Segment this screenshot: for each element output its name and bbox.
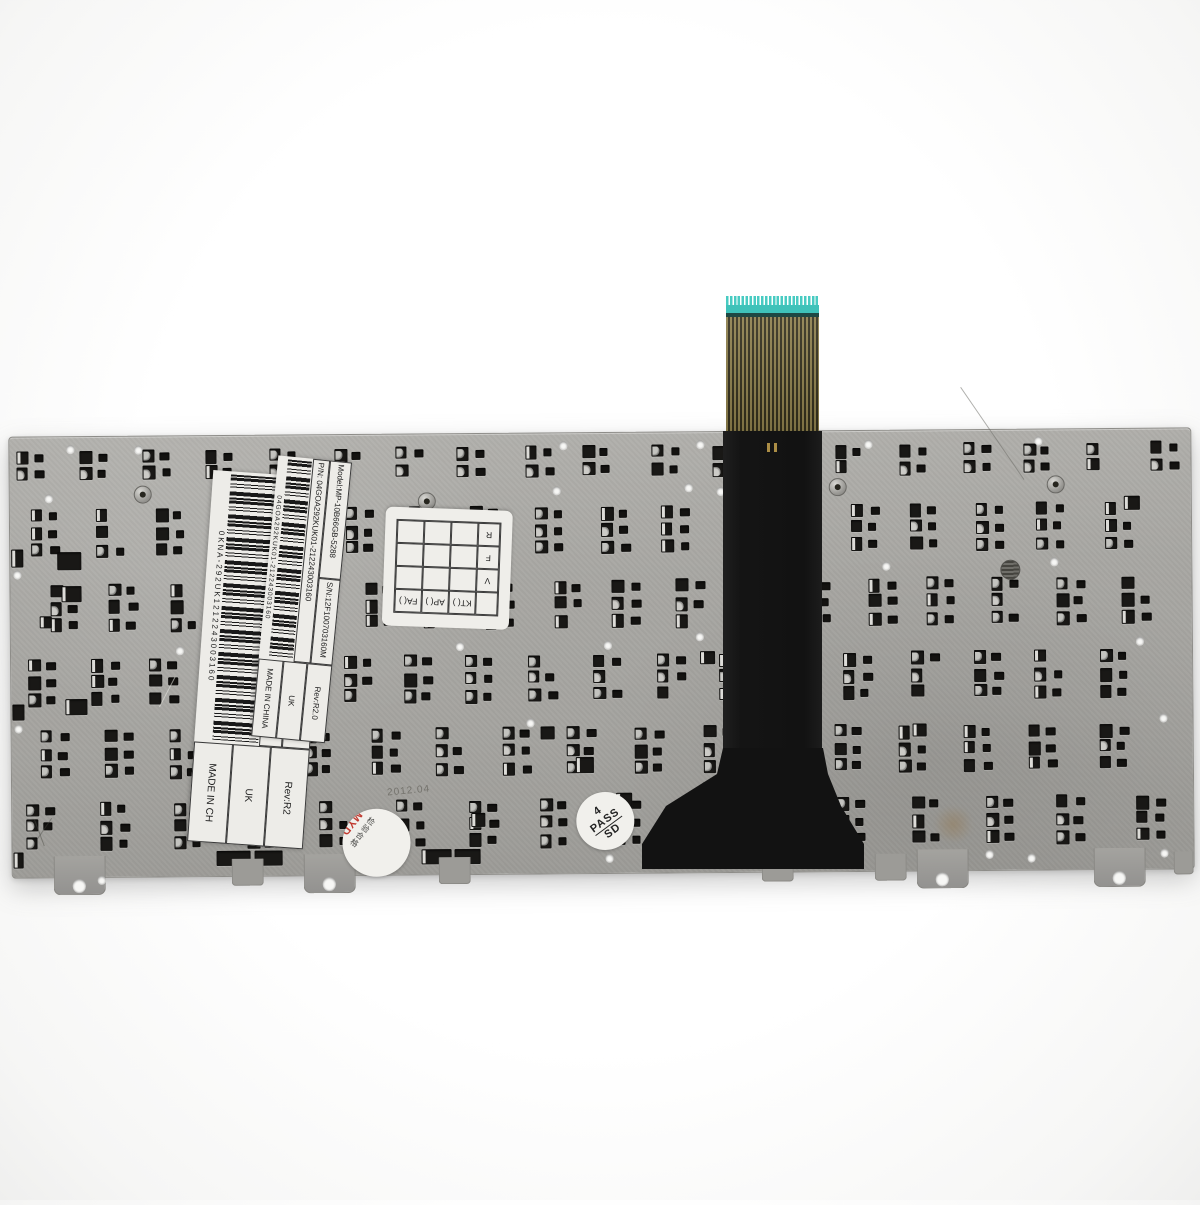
clip-slot [1057,593,1070,607]
clip-slot [31,509,42,521]
clip-slot [1056,813,1069,825]
clip-slot [1056,504,1064,512]
clip-slot [851,504,863,517]
clip-slot [143,465,156,479]
clip-slot [422,657,432,665]
clip-slot [1077,614,1087,622]
clip-slot [1122,610,1135,624]
clip-slot [631,801,641,809]
clip-slot [823,614,831,622]
clip-slot [96,545,108,558]
clip-slot [835,743,847,755]
clip-slot [868,523,876,531]
clip-slot [48,530,57,538]
clip-slot [917,464,926,472]
clip-slot [365,510,374,518]
clip-slot [835,445,846,459]
clip-slot [995,541,1004,549]
clip-slot [364,529,372,537]
clip-slot [852,727,862,735]
clip-slot [100,821,112,835]
clip-slot [1034,685,1046,698]
clip-slot [421,692,430,700]
clip-slot [554,527,562,535]
clip-slot [100,837,112,851]
clip-slot [395,447,406,459]
clip-slot [404,689,416,703]
clip-slot [454,766,464,774]
clip-slot [415,838,425,846]
clip-slot [109,619,120,632]
plate-hole [606,854,614,862]
clip-slot [173,546,182,554]
plate-hole [98,876,106,884]
clip-slot [704,725,717,737]
clip-slot [16,451,28,464]
clip-slot [911,668,922,682]
clip-slot [976,503,987,516]
plate-hole [45,494,53,502]
clip-slot [984,762,993,770]
clip-slot [1076,580,1085,588]
clip-slot [51,618,62,632]
clip-slot [108,678,117,686]
large-cutout [700,651,715,664]
clip-slot [469,833,481,847]
clip-slot [120,824,130,832]
clip-slot [587,729,597,737]
clip-slot [163,468,171,476]
plate-hole [882,562,890,570]
clip-slot [974,650,986,664]
clip-slot [174,819,186,831]
clip-slot [344,689,356,702]
clip-slot [1086,458,1099,470]
clip-slot [593,670,605,683]
clip-slot [555,596,567,608]
clip-slot [557,801,566,809]
clip-slot [1100,649,1113,662]
clip-slot [404,673,417,687]
cable-gold-mark [767,443,770,452]
clip-slot [528,670,539,682]
clip-slot [372,729,383,743]
clip-slot [713,463,724,477]
clip-slot [540,815,552,827]
clip-slot [852,448,860,456]
clip-slot [571,584,580,592]
clip-slot [619,526,628,534]
backplate-tilt-wrapper: 2012.04 Model:MP-10B66GB-5288 S/N:12F100… [0,0,1200,1205]
clip-slot [947,596,955,604]
clip-slot [363,659,371,667]
clip-slot [863,656,872,664]
clip-slot [671,447,679,455]
clip-slot [1056,794,1067,807]
clip-slot [899,743,911,757]
cable-black-section [723,431,822,755]
large-cutout [576,757,594,773]
clip-slot [176,530,184,538]
clip-slot [964,725,976,738]
clip-slot [900,462,911,476]
clip-slot [554,543,563,551]
clip-slot [156,527,169,540]
clip-slot [46,662,56,670]
clip-slot [582,445,595,458]
clip-slot [1169,443,1177,451]
clip-slot [584,747,594,755]
plate-hole [696,632,704,640]
clip-slot [346,526,358,540]
grid-cell [396,543,424,567]
clip-slot [888,597,898,605]
grid-cell-r: R [478,523,501,547]
plate-hole [134,446,142,454]
clip-slot [41,765,52,778]
mount-bump [232,859,264,886]
clip-slot [322,749,331,757]
large-cutout [14,853,24,869]
plate-hole [685,483,693,491]
clip-slot [372,746,383,759]
clip-slot [1122,593,1135,607]
label-large-madein: MADE IN CH [187,741,233,843]
clip-slot [28,659,41,671]
plate-hole [527,719,535,727]
clip-slot [911,650,924,664]
plate-hole [696,440,704,448]
mount-tab-hole [935,872,948,885]
clip-slot [170,748,181,760]
clip-slot [835,758,847,770]
clip-slot [457,465,469,477]
clip-slot [963,442,974,455]
clip-slot [655,730,665,738]
large-cutout [12,705,24,721]
clip-slot [1136,796,1149,810]
clip-slot [1046,744,1056,752]
clip-slot [540,798,553,811]
clip-slot [976,521,989,534]
clip-slot [1117,759,1127,767]
clip-slot [396,464,409,476]
clip-slot [525,445,536,459]
clip-slot [124,733,134,741]
clip-slot [991,653,1001,661]
clip-slot [1024,460,1035,473]
large-cutout [65,699,87,715]
clip-slot [981,445,991,453]
clip-slot [548,691,558,699]
mount-tab-hole [1112,871,1125,884]
clip-slot [365,583,377,595]
clip-slot [540,834,551,848]
clip-slot [41,749,52,761]
clip-slot [1075,833,1085,841]
clip-slot [612,690,622,698]
clip-slot [695,581,705,589]
large-cutout [471,813,485,827]
screw-boss [1047,475,1065,493]
clip-slot [1053,521,1061,529]
clip-slot [1076,797,1085,805]
clip-slot [1052,688,1061,696]
large-cutout [57,552,81,570]
clip-slot [657,669,668,682]
clip-slot [105,748,118,761]
clip-slot [992,687,1001,695]
clip-slot [404,654,417,666]
clip-slot [601,541,614,554]
clip-slot [528,655,540,667]
clip-slot [1123,522,1131,530]
clip-slot [635,745,648,759]
clip-slot [612,658,621,666]
clip-slot [60,768,70,776]
clip-slot [126,622,136,630]
clip-slot [910,536,923,549]
clip-slot [535,524,547,537]
clip-slot [1105,502,1116,515]
plate-hole [456,642,464,650]
clip-slot [1034,649,1046,661]
clip-slot [653,764,662,772]
plate-hole [13,571,21,579]
clip-slot [983,744,991,752]
clip-slot [976,538,988,551]
cable-gold-mark [774,443,777,452]
clip-slot [995,506,1003,514]
clip-slot [910,503,921,517]
clip-slot [1136,811,1147,823]
clip-slot [105,730,118,742]
clip-slot [835,724,847,736]
clip-slot [1121,577,1134,589]
clip-slot [899,726,910,740]
clip-slot [391,765,401,773]
clip-slot [126,587,134,595]
clip-slot [945,615,954,623]
clip-slot [927,506,936,514]
clip-slot [929,539,937,547]
clip-slot [28,693,41,707]
clip-slot [612,614,624,628]
clip-slot [929,799,938,807]
clip-slot [344,656,357,669]
clip-slot [362,677,372,685]
clip-slot [567,744,580,756]
clip-slot [17,467,28,480]
clip-slot [927,612,938,625]
clip-slot [704,760,716,773]
plate-hole [864,440,872,448]
clip-slot [170,584,182,597]
clip-slot [657,653,669,666]
clip-slot [910,519,922,531]
clip-slot [912,796,925,808]
clip-slot [91,659,103,673]
clip-slot [1086,443,1098,455]
clip-slot [855,800,865,808]
clip-slot [986,813,999,827]
clip-slot [1100,685,1111,698]
clip-slot [344,674,357,687]
clip-slot [1100,739,1111,751]
clip-slot [917,762,926,770]
clip-slot [169,695,179,703]
clip-slot [96,509,107,522]
clip-slot [1150,459,1162,471]
grid-cell [395,566,423,590]
clip-slot [346,541,358,553]
clip-slot [469,801,481,813]
clip-slot [694,600,704,608]
clip-slot [974,669,986,682]
clip-slot [396,800,407,812]
clip-slot [912,814,924,828]
grid-cell [397,520,425,544]
clip-slot [1124,540,1133,548]
clip-slot [670,465,678,473]
clip-slot [167,661,177,669]
clip-slot [79,451,92,464]
clip-slot [100,802,111,816]
clip-slot [416,821,424,829]
clip-slot [149,658,161,671]
clip-slot [868,579,879,593]
clip-slot [680,525,689,533]
clip-slot [927,593,938,606]
clip-slot [676,597,688,611]
clip-slot [545,673,554,681]
screw-boss [829,478,847,496]
clip-slot [69,621,78,629]
clip-slot [98,470,106,478]
clip-slot [174,836,186,849]
clip-slot [992,593,1003,606]
clip-slot [676,656,686,664]
clip-slot [1105,519,1117,532]
large-cutout [61,586,81,602]
clip-slot [599,448,607,456]
large-cutout [40,616,52,628]
clip-slot [41,730,52,742]
clip-slot [651,444,663,456]
clip-slot [1004,816,1013,824]
clip-slot [871,507,880,515]
plate-hole [986,850,994,858]
clip-slot [974,684,987,696]
clip-slot [836,460,847,473]
clip-slot [1118,652,1126,660]
clip-slot [436,744,448,757]
clip-slot [1150,441,1161,454]
clip-slot [964,741,975,753]
clip-slot [583,462,596,475]
clip-slot [863,673,873,681]
clip-slot [632,836,640,844]
clip-slot [652,462,664,475]
clip-slot [964,460,976,473]
clip-slot [68,605,78,613]
clip-slot [35,470,45,478]
clip-slot [487,804,497,812]
clip-slot [116,548,124,556]
clip-slot [453,747,462,755]
inspection-grid-table: KT( ) AP( ) FA( ) V F R [393,519,501,617]
plate-hole [1028,854,1036,862]
clip-slot [992,611,1003,623]
clip-slot [1054,670,1062,678]
clip-slot [423,676,433,684]
grid-cell [423,544,451,568]
clip-slot [149,674,162,686]
clip-slot [911,684,924,696]
clip-slot [1023,444,1036,456]
clip-slot [611,580,624,593]
clip-slot [1009,614,1019,622]
clip-slot [918,745,926,753]
grid-cell [450,545,478,569]
clip-slot [657,686,668,698]
mount-bump [875,854,907,881]
clip-slot [523,766,532,774]
inspection-grid-stamp: KT( ) AP( ) FA( ) V F R [382,506,513,629]
clip-slot [1056,577,1067,589]
clip-slot [465,672,476,684]
screw-boss [134,486,152,504]
cable-striped-film [726,317,819,433]
clip-slot [918,447,926,455]
clip-slot [853,746,861,754]
clip-slot [476,468,486,476]
plate-hole [15,725,23,733]
clip-slot [1046,727,1056,735]
clip-slot [49,512,57,520]
clip-slot [483,658,492,666]
clip-slot [465,655,477,667]
label-small-end-block: Rev:R2.0 UK MADE IN CHINA [251,658,332,743]
clip-slot [108,584,121,596]
clip-slot [601,523,613,537]
plate-hole [1034,437,1042,445]
clip-slot [632,600,642,608]
clip-slot [869,613,882,626]
plate-hole [1160,714,1168,722]
grid-cell-f: F [477,546,500,570]
clip-slot [174,803,186,816]
clip-slot [46,696,55,704]
clip-slot [535,540,548,553]
clip-slot [887,582,896,590]
clip-slot [631,617,641,625]
clip-slot [555,615,568,628]
grid-cell [422,567,450,591]
clip-slot [51,602,62,616]
grid-cell [451,522,479,546]
clip-slot [535,507,548,519]
date-stamp: 201年月日 MYD 检验合格 [342,808,411,877]
clip-slot [1036,518,1047,530]
clip-slot [1142,613,1152,621]
clip-slot [1041,462,1050,470]
clip-slot [1056,540,1064,548]
clip-slot [170,765,182,779]
clip-slot [1029,757,1040,769]
clip-slot [546,467,555,475]
clip-slot [899,445,910,458]
